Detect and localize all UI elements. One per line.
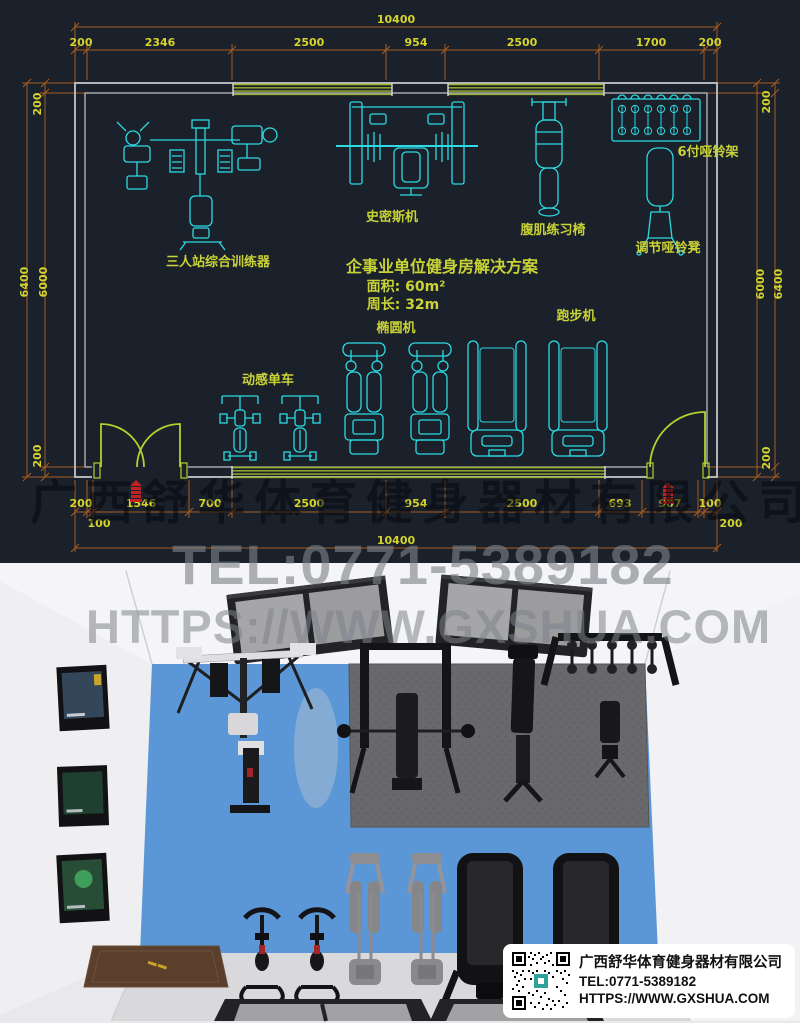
- dim-top-seg: 954: [405, 36, 428, 49]
- dim-bottom-seg: 693: [609, 497, 632, 510]
- dim-left-wallbottom: 200: [31, 444, 44, 467]
- dim-top-seg: 200: [699, 36, 722, 49]
- solution-perimeter: 周长: 32m: [367, 296, 440, 313]
- phone-number: TEL:0771-5389182: [579, 975, 782, 989]
- label-spin-bike: 动感单车: [242, 372, 294, 388]
- dim-bottom-seg: 200: [70, 497, 93, 510]
- label-multi-station: 三人站综合训练器: [166, 254, 271, 270]
- solution-title: 企事业单位健身房解决方案: [345, 257, 539, 276]
- label-dumbbell-rack: 6付哑铃架: [677, 144, 738, 160]
- dim-bottom-seg: 2500: [507, 497, 538, 510]
- info-card: 广西舒华体育健身器材有限公司 TEL:0771-5389182 HTTPS://…: [503, 944, 795, 1018]
- company-name: 广西舒华体育健身器材有限公司: [579, 956, 782, 971]
- label-treadmill: 跑步机: [556, 308, 595, 324]
- label-elliptical: 椭圆机: [376, 320, 415, 336]
- dim-bottom-seg: 100: [699, 497, 722, 510]
- dim-left-inner: 6000: [37, 266, 50, 297]
- info-card-text: 广西舒华体育健身器材有限公司 TEL:0771-5389182 HTTPS://…: [579, 956, 782, 1006]
- wall-posters: [56, 665, 109, 924]
- solution-area: 面积: 60m²: [367, 278, 446, 295]
- dim-top-seg: 1700: [636, 36, 667, 49]
- dim-right-outer: 6400: [772, 268, 785, 299]
- dim-bottom-total: 10400: [377, 534, 416, 547]
- dim-top-seg: 2346: [145, 36, 176, 49]
- gym-plan-poster: 10400 200 2346 2500 954 2500 1700 200 20…: [0, 0, 800, 1023]
- dim-bottom-seg: 2500: [294, 497, 325, 510]
- dim-bottom-seg: 700: [199, 497, 222, 510]
- qr-code-icon: [512, 952, 570, 1010]
- dim-bottom-sub: 200: [720, 517, 743, 530]
- equipment-shadow: [294, 688, 338, 808]
- poster: [56, 853, 109, 924]
- label-ab-bench: 腹肌练习椅: [520, 222, 585, 238]
- dim-right-wallbottom: 200: [760, 446, 773, 469]
- cad-floor-plan: 10400 200 2346 2500 954 2500 1700 200 20…: [0, 0, 800, 563]
- poster: [57, 765, 109, 827]
- dim-top-total: 10400: [377, 13, 416, 26]
- dim-left-walltop: 200: [31, 92, 44, 115]
- dim-top-seg: 2500: [294, 36, 325, 49]
- dim-bottom-sub: 100: [88, 517, 111, 530]
- entrance-door: [84, 946, 228, 987]
- dim-top-seg: 200: [70, 36, 93, 49]
- label-smith-machine: 史密斯机: [366, 209, 418, 225]
- dim-bottom-seg: 954: [405, 497, 428, 510]
- label-adjustable-bench: 调节哑铃凳: [635, 240, 701, 256]
- dim-right-walltop: 200: [760, 90, 773, 113]
- poster: [56, 665, 109, 732]
- dim-right-inner: 6000: [754, 268, 767, 299]
- dim-top-seg: 2500: [507, 36, 538, 49]
- dim-bottom-seg: 1546: [126, 497, 157, 510]
- dim-left-outer: 6400: [18, 266, 31, 297]
- website-url: HTTPS://WWW.GXSHUA.COM: [579, 992, 782, 1006]
